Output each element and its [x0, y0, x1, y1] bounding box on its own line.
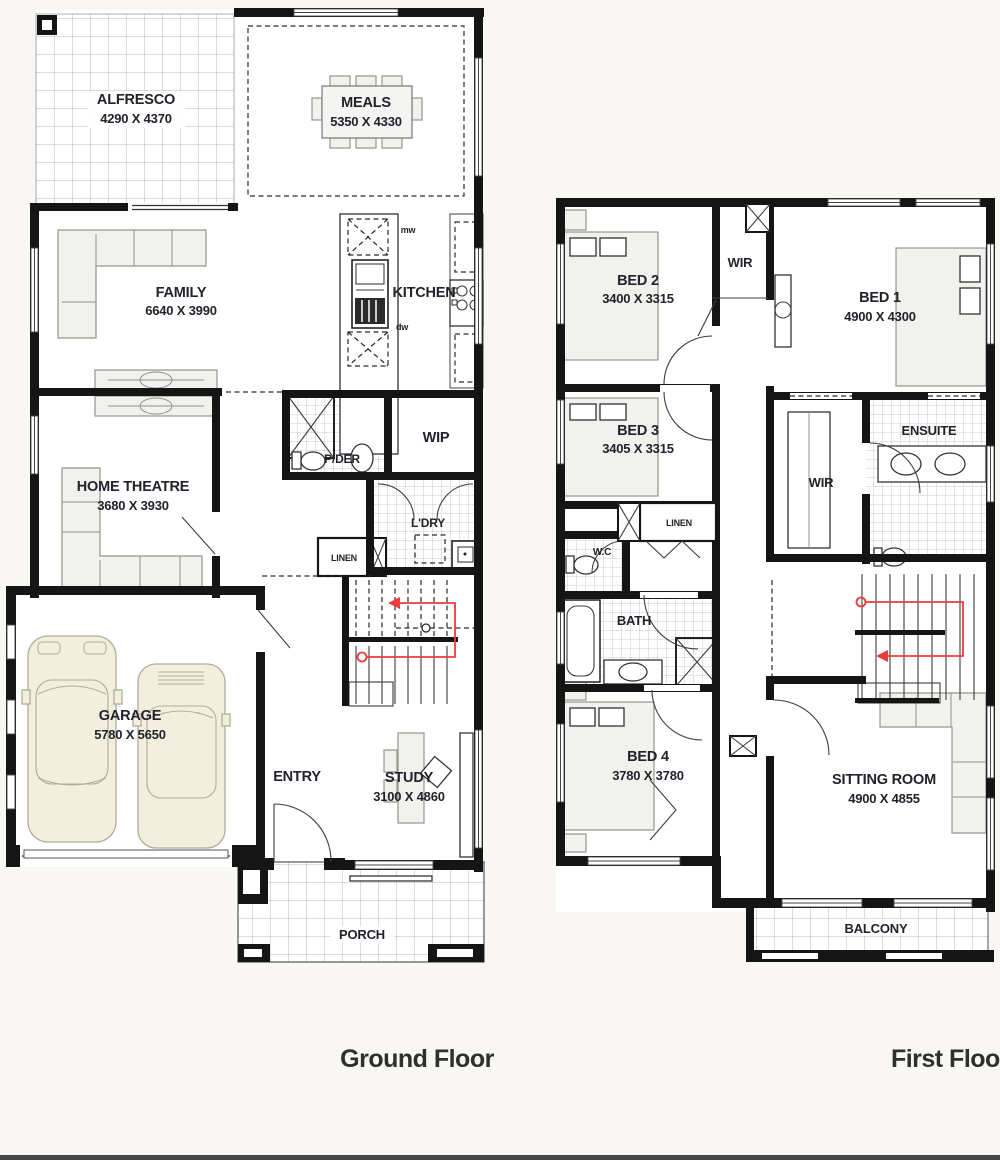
- sitting-label: SITTING ROOM: [832, 772, 936, 788]
- bed4-label: BED 4: [627, 749, 669, 765]
- sitting-dims: 4900 X 4855: [848, 791, 920, 806]
- floor-plan-figure: ALFRESCO 4290 X 4370 MEALS 5350 X 4330 F…: [0, 0, 1000, 1160]
- family-dims: 6640 X 3990: [145, 303, 217, 318]
- car-small: [133, 664, 230, 848]
- wir-front-label: WIR: [728, 255, 753, 270]
- void-box: [730, 736, 756, 756]
- study-label: STUDY: [385, 770, 434, 786]
- home-theatre-dims: 3680 X 3930: [97, 498, 169, 513]
- wir-main-label: WIR: [809, 475, 834, 490]
- garage-dims: 5780 X 5650: [94, 727, 166, 742]
- toilet-tank: [292, 452, 301, 469]
- porch-label: PORCH: [339, 927, 385, 942]
- study-dims: 3100 X 4860: [373, 789, 445, 804]
- microwave-label: mw: [401, 225, 417, 235]
- footer-divider: [0, 1155, 1000, 1160]
- toilet-icon: [301, 452, 325, 470]
- dining-table: [312, 76, 422, 148]
- garage-label: GARAGE: [99, 708, 162, 724]
- linen-label-ground: LINEN: [331, 553, 357, 563]
- oven: [352, 260, 388, 328]
- meals-label: MEALS: [341, 95, 391, 111]
- bed3-label: BED 3: [617, 423, 659, 439]
- garage-door: [24, 850, 228, 858]
- basin-icon: [935, 453, 965, 475]
- bed4-dims: 3780 X 3780: [612, 768, 684, 783]
- balcony-label: BALCONY: [845, 921, 908, 936]
- pder-label: P/DER: [324, 452, 360, 466]
- entry-label: ENTRY: [273, 769, 321, 785]
- linen-label-first: LINEN: [666, 518, 692, 528]
- bath-label: BATH: [617, 613, 651, 628]
- bed2-dims: 3400 X 3315: [602, 291, 674, 306]
- ground-floor-plan: ALFRESCO 4290 X 4370 MEALS 5350 X 4330 F…: [6, 8, 495, 1073]
- ground-floor-title: Ground Floor: [340, 1045, 494, 1073]
- wip-label: WIP: [423, 430, 450, 446]
- wc-label: W.C: [593, 547, 611, 558]
- family-label: FAMILY: [156, 285, 207, 301]
- toilet-tank: [566, 556, 574, 573]
- basin-icon: [891, 453, 921, 475]
- bed1-dims: 4900 X 4300: [844, 309, 916, 324]
- toilet-icon: [574, 556, 598, 574]
- first-floor-plan: BED 2 3400 X 3315 WIR BED 1 4900 X 4300 …: [556, 198, 1000, 1073]
- first-floor-title: First Floor: [891, 1045, 1000, 1073]
- void-box: [746, 204, 770, 232]
- bed3-dims: 3405 X 3315: [602, 441, 674, 456]
- alfresco-label: ALFRESCO: [97, 92, 175, 108]
- meals-dims: 5350 X 4330: [330, 114, 402, 129]
- bed2-label: BED 2: [617, 273, 659, 289]
- bed1-label: BED 1: [859, 290, 901, 306]
- home-theatre-label: HOME THEATRE: [77, 479, 190, 495]
- dishwasher-label: dw: [396, 322, 409, 332]
- kitchen-label: KITCHEN: [392, 285, 455, 301]
- ensuite-label: ENSUITE: [902, 423, 957, 438]
- ldry-label: L'DRY: [411, 516, 445, 530]
- alfresco-dims: 4290 X 4370: [100, 111, 172, 126]
- floor-plan-page: ALFRESCO 4290 X 4370 MEALS 5350 X 4330 F…: [0, 0, 1000, 1160]
